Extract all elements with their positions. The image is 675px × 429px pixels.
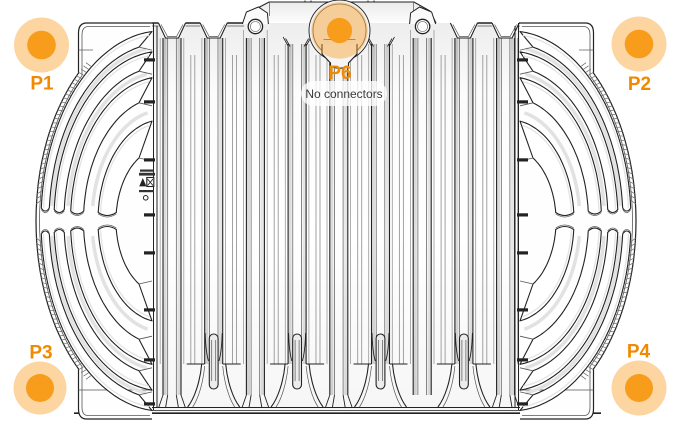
svg-text:P6: P6 (328, 63, 351, 84)
svg-text:P2: P2 (628, 74, 651, 95)
svg-text:No connectors: No connectors (305, 87, 382, 101)
svg-text:P4: P4 (627, 342, 651, 363)
svg-text:P3: P3 (29, 343, 52, 364)
svg-text:P1: P1 (30, 74, 54, 95)
